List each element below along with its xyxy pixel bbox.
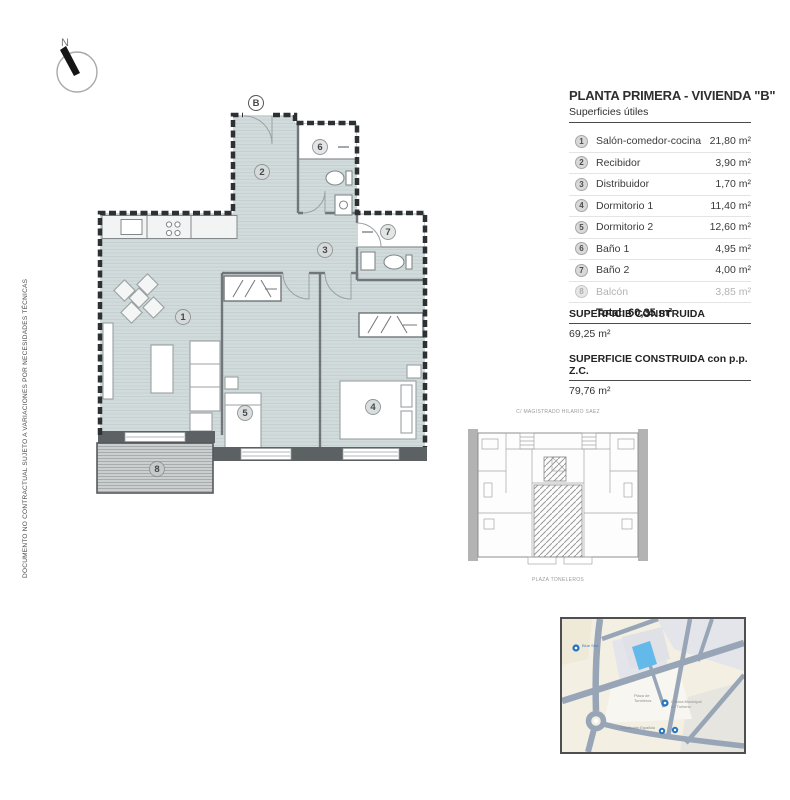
sink-icon [361,252,375,270]
street-label-bottom: PLAZA TONELEROS [468,577,648,583]
room-number-8: 8 [150,462,165,477]
pillow-icon [401,385,412,407]
room-label: Salón-comedor-cocina [596,135,701,147]
page-title: PLANTA PRIMERA - VIVIENDA "B" [569,88,784,103]
room-number-badge: 5 [575,221,588,234]
svg-text:B: B [253,98,260,109]
table-row: 5 Dormitorio 2 12,60 m² [569,217,751,239]
window-icon [343,449,399,460]
room-number-badge: 2 [575,156,588,169]
svg-text:3: 3 [322,245,327,256]
room-number-badge: 6 [575,242,588,255]
plan-sheet: DOCUMENTO NO CONTRACTUAL SUJETO A VARIAC… [0,0,790,800]
room-area: 3,90 m² [715,157,751,169]
room-number-badge: 8 [575,285,588,298]
map-street-label: Constitución Española [620,726,655,730]
room-label: Baño 1 [596,243,629,255]
room-area: 4,95 m² [715,243,751,255]
room-area: 1,70 m² [715,178,751,190]
room-number-badge: 4 [575,199,588,212]
room-number-2: 2 [255,165,270,180]
map-poi-label: Blue Sea [582,643,599,648]
window-icon [241,449,291,460]
table-row: 6 Baño 1 4,95 m² [569,239,751,261]
svg-text:1: 1 [180,312,186,323]
room-area: 4,00 m² [715,264,751,276]
toilet-icon [384,255,404,269]
hob-burner-icon [166,222,171,227]
map-canvas: Blue Sea Plaza de Toneleros Oficina Muni… [562,619,744,752]
room-area: 11,40 m² [710,200,751,212]
nightstand-icon [407,365,421,378]
compass-needle-icon [60,46,80,76]
svg-text:4: 4 [370,402,376,413]
table-row: 2 Recibidor 3,90 m² [569,153,751,175]
street-label-top: C/ MAGISTRADO HILARIO SAEZ [468,409,648,415]
table-row: 8 Balcón 3,85 m² [569,282,751,304]
room-number-7: 7 [381,225,396,240]
kitchen-counter [102,216,237,239]
map-office-label: de Turismo [671,704,692,709]
room-label: Recibidor [596,157,640,169]
toilet-icon [326,171,344,185]
room-area: 12,60 m² [710,221,751,233]
bed-icon [225,393,261,451]
svg-text:5: 5 [242,408,248,419]
side-band [468,429,478,561]
hob-burner-icon [175,230,180,235]
nightstand-icon [225,377,238,389]
hob-burner-icon [166,230,171,235]
roundabout-center [594,719,598,723]
built-area-value: 69,25 m² [569,328,751,340]
room-number-5: 5 [238,406,253,421]
room-area: 3,85 m² [715,286,751,298]
side-band [638,429,648,561]
room-label: Dormitorio 1 [596,200,653,212]
room-number-badge: 3 [575,178,588,191]
svg-text:6: 6 [317,142,322,153]
built-area-with-common-label: SUPERFICIE CONSTRUIDA con p.p. Z.C. [569,353,751,381]
room-label: Baño 2 [596,264,629,276]
svg-text:2: 2 [259,167,264,178]
built-area-block: SUPERFICIE CONSTRUIDA 69,25 m² SUPERFICI… [569,308,751,397]
room-number-1: 1 [176,310,191,325]
room-label: Balcón [596,286,628,298]
room-area: 21,80 m² [710,135,751,147]
subtitle: Superficies útiles [569,106,751,123]
room-number-6: 6 [313,140,328,155]
table-row: 1 Salón-comedor-cocina 21,80 m² [569,131,751,153]
location-map: Blue Sea Plaza de Toneleros Oficina Muni… [560,617,746,754]
disclaimer-vertical-text: DOCUMENTO NO CONTRACTUAL SUJETO A VARIAC… [22,233,36,578]
built-area-with-common-value: 79,76 m² [569,385,751,397]
room-label: Distribuidor [596,178,649,190]
pillow-icon [401,411,412,433]
svg-text:8: 8 [154,464,159,475]
built-area-group: SUPERFICIE CONSTRUIDA 69,25 m² [569,308,751,340]
title-block: PLANTA PRIMERA - VIVIENDA "B" Superficie… [569,88,784,319]
sofa-arm-icon [190,413,212,431]
table-row: 3 Distribuidor 1,70 m² [569,174,751,196]
north-compass: N [50,33,104,97]
map-plaza-label: Toneleros [634,698,651,703]
table-row: 4 Dormitorio 1 11,40 m² [569,196,751,218]
room-number-badge: 1 [575,135,588,148]
bathroom1-upper-area [299,124,356,159]
table-icon [151,345,173,393]
built-area-label: SUPERFICIE CONSTRUIDA [569,308,751,324]
built-area-group: SUPERFICIE CONSTRUIDA con p.p. Z.C. 79,7… [569,353,751,397]
table-row: 7 Baño 2 4,00 m² [569,260,751,282]
kitchen-sink-icon [121,220,142,235]
hob-burner-icon [175,222,180,227]
room-number-4: 4 [366,400,381,415]
room-number-badge: 7 [575,264,588,277]
room-label: Dormitorio 2 [596,221,653,233]
entrance-badge: B [249,96,264,111]
key-plan [468,423,648,575]
sofa-icon [190,341,220,411]
svg-text:7: 7 [385,227,390,238]
area-table: 1 Salón-comedor-cocina 21,80 m² 2 Recibi… [569,131,751,319]
sideboard-icon [103,323,113,399]
room-number-3: 3 [318,243,333,258]
floor-plan: B 1 2 3 4 5 6 7 8 [95,95,435,500]
